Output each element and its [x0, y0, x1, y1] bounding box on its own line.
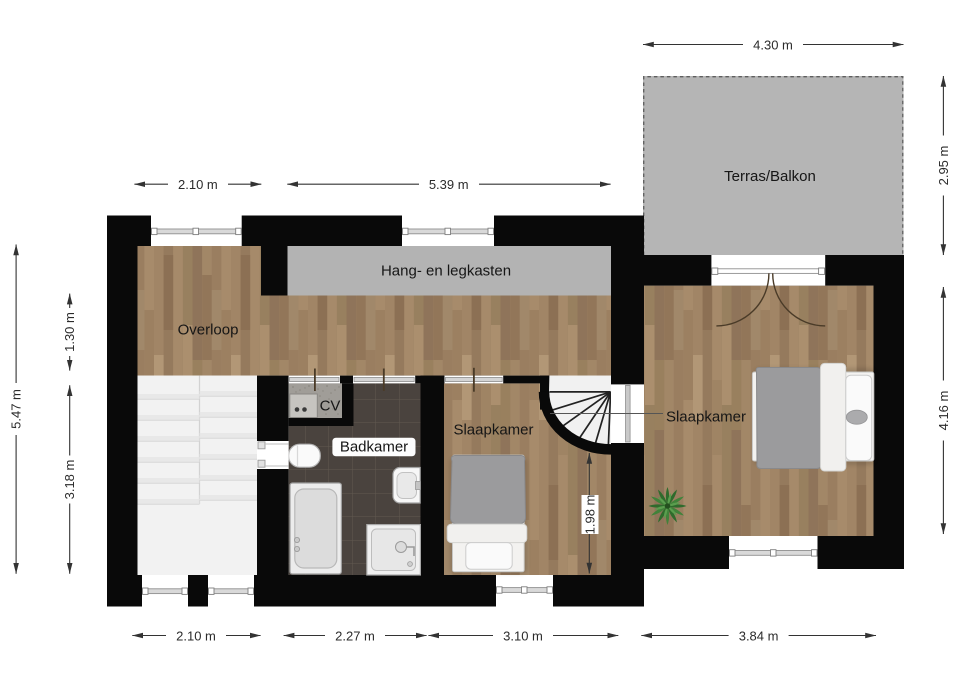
svg-text:3.10 m: 3.10 m	[503, 629, 543, 644]
svg-text:CV: CV	[320, 398, 341, 415]
svg-text:1.98 m: 1.98 m	[582, 495, 597, 535]
svg-text:5.47 m: 5.47 m	[9, 389, 24, 429]
svg-text:2.27 m: 2.27 m	[335, 629, 375, 644]
svg-text:4.16 m: 4.16 m	[936, 391, 951, 431]
svg-text:Slaapkamer: Slaapkamer	[453, 422, 533, 439]
svg-text:2.10 m: 2.10 m	[178, 177, 218, 192]
svg-text:Slaapkamer: Slaapkamer	[666, 409, 746, 426]
svg-text:3.84 m: 3.84 m	[739, 629, 779, 644]
svg-text:1.30 m: 1.30 m	[62, 312, 77, 352]
svg-text:Overloop: Overloop	[178, 322, 239, 339]
svg-text:Terras/Balkon: Terras/Balkon	[724, 168, 816, 185]
svg-text:5.39 m: 5.39 m	[429, 177, 469, 192]
svg-text:Badkamer: Badkamer	[340, 439, 408, 456]
svg-text:2.10 m: 2.10 m	[176, 629, 216, 644]
svg-text:4.30 m: 4.30 m	[753, 38, 793, 53]
svg-text:Hang- en legkasten: Hang- en legkasten	[381, 263, 511, 280]
svg-text:3.18 m: 3.18 m	[62, 460, 77, 500]
svg-text:2.95 m: 2.95 m	[936, 146, 951, 186]
